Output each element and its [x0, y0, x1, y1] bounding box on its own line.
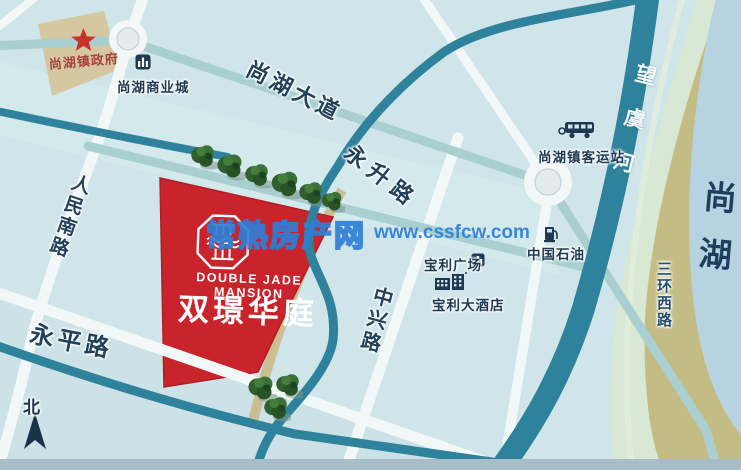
poi-label-bus-station: 尚湖镇客运站: [538, 146, 625, 166]
bottom-strip: [0, 459, 741, 470]
project-name-cn: 双璟华庭: [166, 283, 329, 334]
road-label-sanhuan-west: 三环西路: [653, 261, 674, 329]
poi-label-baoli-plaza: 宝利广场: [424, 254, 482, 274]
poi-label-commercial-city: 尚湖商业城: [117, 76, 190, 96]
poi-label-baoli-hotel: 宝利大酒店: [432, 294, 505, 314]
compass-north-label: 北: [23, 393, 40, 418]
fuel-icon: [544, 225, 559, 243]
hotel-icon: [435, 272, 469, 290]
bus-icon: [558, 120, 596, 140]
jade-emblem-icon: [194, 212, 252, 272]
north-arrow-icon: [24, 413, 46, 453]
location-map: DOUBLE JADE MANSION 双璟华庭: [0, 0, 741, 470]
poi-label-petrochina: 中国石油: [527, 243, 585, 263]
building-icon: [135, 54, 151, 70]
lake-label-shanghu: 尚湖: [685, 178, 741, 296]
